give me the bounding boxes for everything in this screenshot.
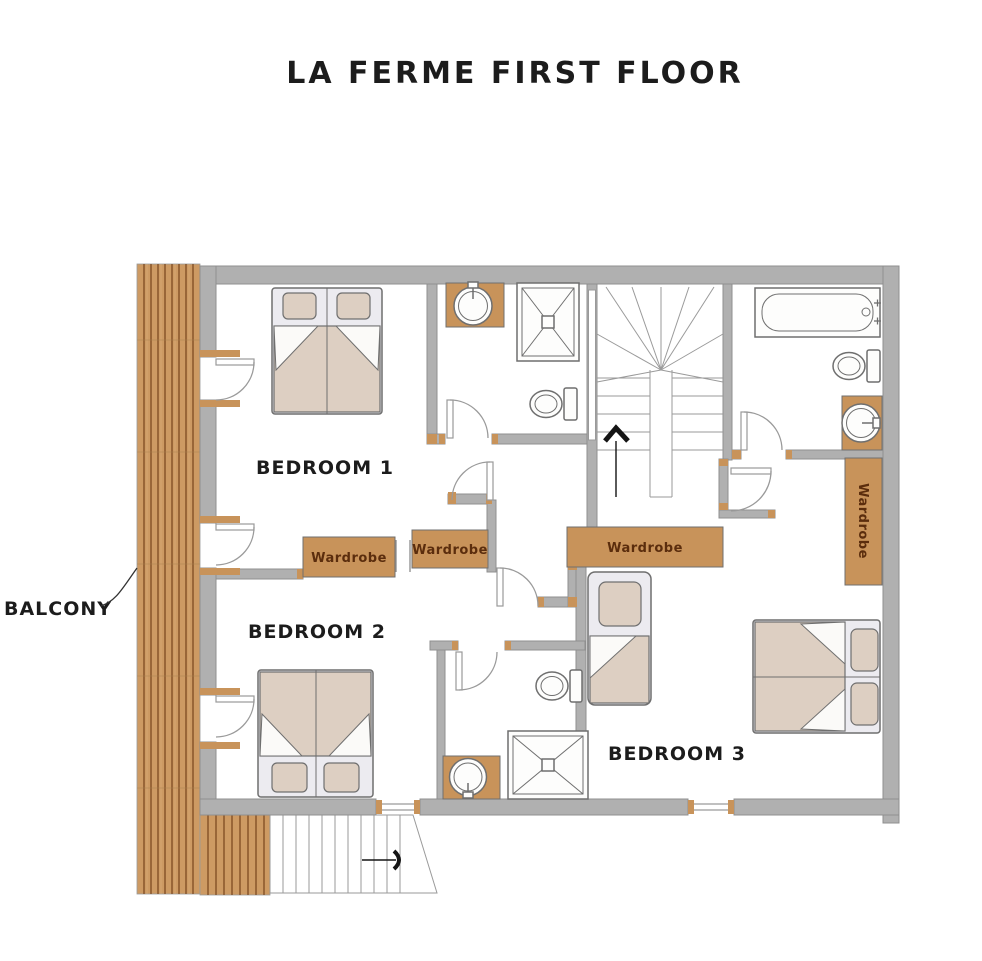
pillow: [337, 293, 370, 319]
wall-outer-right: [883, 266, 899, 823]
stairs-up-arrow-icon: [605, 428, 628, 497]
door-balcony-2: [216, 524, 254, 565]
wash-basin-right: [842, 396, 882, 450]
steps-direction-arrow-icon: [362, 851, 399, 869]
window-bedroom2: [376, 800, 420, 814]
cistern: [564, 388, 577, 420]
cistern: [570, 670, 582, 702]
pillow: [324, 763, 359, 792]
wardrobe-label: Wardrobe: [311, 551, 387, 566]
door-balcony-1: [216, 359, 254, 400]
staircase: [597, 287, 723, 497]
wardrobe-label: Wardrobe: [855, 483, 870, 559]
wardrobe-bedroom3-tall: Wardrobe: [845, 458, 882, 585]
balcony-decking: [137, 264, 200, 894]
wall-stairwell-right: [723, 284, 732, 460]
door-bathroom-top-middle: [447, 400, 488, 438]
white-step-lines: [283, 815, 400, 893]
pillow: [851, 629, 878, 671]
window-stairwell: [589, 290, 596, 440]
door-balcony-3: [216, 696, 254, 737]
wardrobe-label: Wardrobe: [412, 543, 488, 558]
door-bedroom2: [497, 568, 538, 606]
wall-outer-top: [200, 266, 899, 284]
shower-drain-icon: [542, 759, 554, 771]
stair-newel: [650, 370, 672, 497]
wall-bathroom1-bottom: [492, 434, 597, 444]
wood-steps: [200, 815, 270, 895]
cistern: [867, 350, 880, 382]
wardrobe-bedroom1-a: Wardrobe: [303, 537, 395, 577]
floor-plan: LA FERME FIRST FLOOR: [0, 0, 982, 961]
wardrobe-hall: Wardrobe: [567, 527, 723, 567]
tap-icon: [463, 792, 473, 798]
door-bathroom-top-right: [741, 412, 782, 450]
wash-basin-bottom: [443, 756, 500, 799]
door-bedroom3: [731, 468, 771, 511]
single-bed-bedroom3: [588, 572, 651, 705]
window-bedroom3: [688, 800, 734, 814]
shower-drain-icon: [542, 316, 554, 328]
toilet-top-middle: [530, 388, 577, 420]
wardrobe-bedroom1-b: Wardrobe: [412, 530, 488, 568]
wash-basin-top: [446, 282, 504, 327]
double-bed-bedroom1: [272, 288, 382, 414]
wall-outer-left: [200, 266, 216, 357]
tap-icon: [468, 282, 478, 288]
door-bathroom-bottom-middle: [456, 652, 497, 690]
balcony-label: BALCONY: [4, 598, 112, 620]
double-bed-bedroom3: [753, 620, 880, 733]
wall-bathroom1-left: [427, 284, 437, 442]
wall-bathroom2-top: [505, 641, 585, 650]
balcony-callout: BALCONY: [4, 568, 137, 620]
pillow: [599, 582, 641, 626]
exterior-steps: [200, 815, 437, 895]
floorplan-page: LA FERME FIRST FLOOR: [0, 0, 982, 961]
toilet-bottom-middle: [536, 670, 582, 702]
tap-icon: [873, 418, 880, 428]
bedroom3-label: BEDROOM 3: [608, 743, 746, 765]
white-steps: [270, 815, 437, 893]
pillow: [851, 683, 878, 725]
pillow: [283, 293, 316, 319]
pillow: [272, 763, 307, 792]
straight-treads: [597, 378, 723, 450]
bathtub: [755, 288, 881, 337]
page-title: LA FERME FIRST FLOOR: [286, 56, 744, 91]
wall-outer-bottom: [200, 799, 376, 815]
toilet-top-right: [833, 350, 880, 382]
bedroom2-label: BEDROOM 2: [248, 621, 386, 643]
wardrobe-label: Wardrobe: [607, 541, 683, 556]
winder-treads: [597, 287, 723, 382]
double-bed-bedroom2: [258, 670, 373, 797]
bedroom1-label: BEDROOM 1: [256, 457, 394, 479]
shower-top: [517, 283, 579, 361]
shower-bottom: [508, 731, 588, 799]
